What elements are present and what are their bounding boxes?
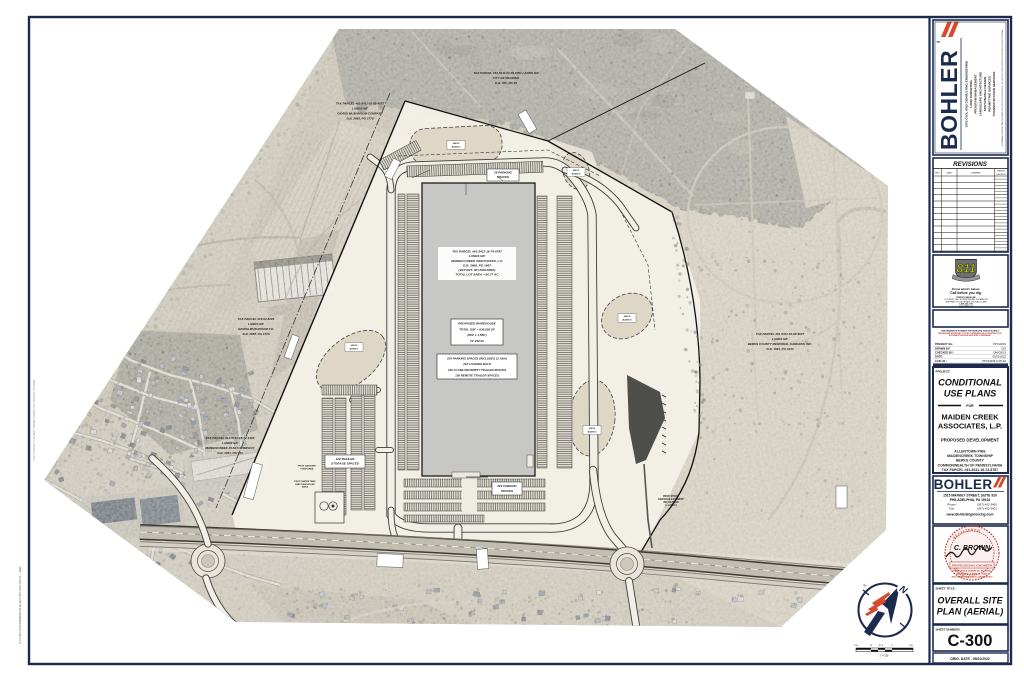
svg-text:BERKS COUNTY: BERKS COUNTY — [956, 459, 985, 463]
svg-text:COMMONWEALTH OF PENNSYLVANIA: COMMONWEALTH OF PENNSYLVANIA — [938, 463, 1003, 467]
svg-text:TOTAL GSF = 936,000 SF: TOTAL GSF = 936,000 SF — [459, 327, 495, 331]
svg-text:LANDSCAPE ARCHITECTURE: LANDSCAPE ARCHITECTURE — [978, 72, 982, 116]
svg-text:216 LOADING BAYS: 216 LOADING BAYS — [462, 362, 491, 366]
svg-text:0: 0 — [891, 645, 893, 647]
svg-text:D.B. 1691, PG 1243: D.B. 1691, PG 1243 — [766, 347, 793, 351]
svg-text:PPX13033-CUP-0A: PPX13033-CUP-0A — [982, 359, 1006, 363]
svg-text:DRAWN BY:: DRAWN BY: — [935, 346, 950, 350]
svg-text:COMMENT: COMMENT — [970, 172, 981, 174]
svg-text:Call before you dig.: Call before you dig. — [950, 291, 982, 295]
svg-text:CHECKED BY: CHECKED BY — [996, 174, 1006, 176]
svg-text:USE PLANS: USE PLANS — [944, 389, 997, 399]
svg-text:BOHLER: BOHLER — [936, 50, 962, 150]
svg-text:LANDS N/F: LANDS N/F — [352, 107, 368, 111]
svg-text:ORIG. DATE - 05/01/2022: ORIG. DATE - 05/01/2022 — [950, 657, 990, 661]
svg-text:29 PARKING: 29 PARKING — [493, 171, 512, 175]
svg-text:811: 811 — [956, 262, 975, 276]
svg-text:DOCUMENT UNLESS INDICATED OTHE: DOCUMENT UNLESS INDICATED OTHERWISE. — [949, 334, 992, 337]
svg-text:PROPOSED DEVELOPMENT: PROPOSED DEVELOPMENT — [941, 438, 1000, 443]
svg-text:534 PARKING SPACES (INCLUDES 1: 534 PARKING SPACES (INCLUDES 12 ADA) — [447, 357, 507, 361]
svg-text:MAIDENCREEK TOWNSHIP: MAIDENCREEK TOWNSHIP — [947, 454, 993, 458]
svg-text:M&VG: M&VG — [573, 170, 580, 172]
svg-text:PROP. STORM: PROP. STORM — [663, 496, 679, 498]
svg-text:DM/CB/JS: DM/CB/JS — [993, 351, 1006, 355]
svg-text:BASIN 4: BASIN 4 — [623, 318, 632, 321]
svg-text:(660' x 1,550'): (660' x 1,550') — [467, 333, 486, 337]
svg-text:FF 352.00: FF 352.00 — [470, 339, 484, 343]
svg-text:CAD I.D.:: CAD I.D.: — [935, 359, 947, 363]
svg-text:PROJECT No.:: PROJECT No.: — [935, 342, 954, 346]
svg-text:(VACANT- NO BUILDING): (VACANT- NO BUILDING) — [459, 268, 496, 272]
svg-text:GIORGI MUSHROOM COMPANY: GIORGI MUSHROOM COMPANY — [337, 112, 384, 116]
svg-text:PROJECT:: PROJECT: — [936, 370, 951, 374]
svg-text:TAX PARCEL #61-5411-02-85-4057: TAX PARCEL #61-5411-02-85-4057 — [336, 102, 385, 106]
svg-text:150: 150 — [909, 645, 913, 647]
svg-text:TM: TM — [936, 41, 939, 44]
svg-text:PROPOSED WAREHOUSE: PROPOSED WAREHOUSE — [458, 322, 497, 326]
svg-text:FIRST CHOICE LICENSE No. PE-07: FIRST CHOICE LICENSE No. PE-075559 — [953, 571, 992, 573]
svg-text:129 TRAILER: 129 TRAILER — [336, 457, 356, 461]
svg-text:www.BohlerEngineering.com: www.BohlerEngineering.com — [947, 513, 994, 517]
svg-text:1" = 150': 1" = 150' — [879, 654, 889, 657]
svg-text:M&VG: M&VG — [624, 316, 631, 318]
svg-text:TAX PARCEL #61-5411-01-89-8791: TAX PARCEL #61-5411-01-89-8791 LANDS N/F — [473, 71, 538, 75]
svg-text:LANDS N/F: LANDS N/F — [469, 254, 486, 258]
svg-text:(+1.27 AC): (+1.27 AC) — [665, 504, 676, 507]
svg-text:M&VG: M&VG — [351, 345, 358, 347]
svg-text:M&VG: M&VG — [589, 428, 596, 430]
svg-text:C-300: C-300 — [948, 632, 993, 650]
svg-text:LANDS N/F: LANDS N/F — [222, 441, 238, 445]
svg-text:D.B. 3668, PG 1667: D.B. 3668, PG 1667 — [463, 263, 491, 267]
svg-text:ALLENTOWN PIKE: ALLENTOWN PIKE — [954, 450, 986, 454]
svg-text:MAIDENCREEK PLAZA COMPANY: MAIDENCREEK PLAZA COMPANY — [205, 446, 255, 450]
svg-text:CITY OF READING: CITY OF READING — [493, 76, 520, 80]
svg-text:PROFESSIONAL ENGINEER: PROFESSIONAL ENGINEER — [952, 564, 993, 568]
svg-text:OVERALL SITE: OVERALL SITE — [937, 596, 1003, 606]
svg-text:D.B. 2665, PG 1778: D.B. 2665, PG 1778 — [346, 117, 373, 121]
svg-text:MAIDEN CREEK: MAIDEN CREEK — [941, 413, 999, 422]
svg-text:PLOT: 5/26/2022 10:42 AM BY:: PLOT: 5/26/2022 10:42 AM BY: SHAWN STRUN… — [33, 379, 36, 461]
svg-text:BASIN 2: BASIN 2 — [452, 146, 461, 148]
svg-text:TAX PARCEL #61-5415-15-73-1406: TAX PARCEL #61-5415-15-73-1406 — [206, 436, 255, 440]
svg-text:SJS: SJS — [1001, 346, 1006, 350]
svg-text:Fax:: Fax: — [949, 506, 955, 510]
svg-text:AND PUMPHOUSE: AND PUMPHOUSE — [295, 483, 315, 486]
svg-text:PLAN (AERIAL): PLAN (AERIAL) — [937, 607, 1004, 617]
svg-text:DELAWARE LICENSE No. 19040: DELAWARE LICENSE No. 19040 — [957, 573, 988, 576]
svg-text:SUSTAINABLE DESIGN: SUSTAINABLE DESIGN — [983, 76, 987, 111]
svg-text:293 PARKING: 293 PARKING — [496, 484, 517, 488]
svg-text:PHILADELPHIA, PA 19102: PHILADELPHIA, PA 19102 — [950, 498, 991, 502]
svg-text:SHEET NUMBER:: SHEET NUMBER: — [936, 628, 961, 632]
svg-text:FOR: FOR — [966, 404, 974, 408]
svg-text:RELOCATION: RELOCATION — [663, 501, 678, 504]
svg-text:45: 45 — [862, 583, 867, 588]
svg-text:STORAGE SPACES: STORAGE SPACES — [331, 462, 359, 466]
svg-text:05/01/2022: 05/01/2022 — [993, 355, 1007, 359]
svg-text:TOTAL LOT AREA = 80.77 AC: TOTAL LOT AREA = 80.77 AC — [456, 273, 500, 277]
svg-text:TRANSPORTATION SERVICES: TRANSPORTATION SERVICES — [992, 72, 996, 117]
svg-text:TAX PARCEL #61-5411-63-99-9637: TAX PARCEL #61-5411-63-99-9637 — [756, 332, 805, 336]
svg-text:D.B. 700, PG 59: D.B. 700, PG 59 — [495, 81, 517, 85]
svg-text:BERKS COUNTY MEMORIAL GARDENS,: BERKS COUNTY MEMORIAL GARDENS, INC. — [748, 342, 813, 346]
svg-text:PROP. WATER TANK: PROP. WATER TANK — [294, 480, 316, 483]
svg-text:37.5: 37.5 — [879, 645, 884, 647]
svg-text:NEW JERSEY LICENSE No. 24GE053: NEW JERSEY LICENSE No. 24GE05353500 — [952, 576, 994, 579]
svg-text:H:\\19\\PPX13033\\DRAWINGS\\PL: H:\\19\\PPX13033\\DRAWINGS\\PLAN SETS\\P… — [19, 566, 22, 643]
svg-text:CHECKED BY:: CHECKED BY: — [935, 351, 954, 355]
svg-text:D.B. 2665, PG 1778: D.B. 2665, PG 1778 — [242, 332, 269, 336]
svg-text:PERMITTING SERVICES: PERMITTING SERVICES — [988, 76, 992, 112]
svg-text:D.B. 3051, PG 904: D.B. 3051, PG 904 — [217, 451, 243, 455]
svg-text:SPACES: SPACES — [501, 489, 513, 493]
svg-text:REVISIONS: REVISIONS — [953, 161, 988, 168]
svg-text:BOHLER: BOHLER — [934, 477, 993, 492]
svg-text:SITE CIVIL AND CONSULTING ENGI: SITE CIVIL AND CONSULTING ENGINEERING — [965, 60, 969, 127]
svg-text:BASIN 3: BASIN 3 — [588, 431, 597, 433]
svg-text:AREA: AREA — [302, 486, 309, 489]
svg-text:LAND SURVEYING: LAND SURVEYING — [969, 80, 973, 108]
svg-text:CONDITIONAL: CONDITIONAL — [938, 378, 1002, 388]
svg-text:LANDS N/F: LANDS N/F — [772, 337, 788, 341]
svg-text:MAIDEN CREEK ASSOCIATES, L.P.: MAIDEN CREEK ASSOCIATES, L.P. — [451, 259, 503, 263]
svg-text:LANDS N/F: LANDS N/F — [248, 322, 264, 326]
svg-text:TAX PARCEL #15-64-8205: TAX PARCEL #15-64-8205 — [238, 317, 275, 321]
svg-text:ASSOCIATES, L.P.: ASSOCIATES, L.P. — [938, 422, 1002, 431]
svg-text:DRAINAGE EASEMENT: DRAINAGE EASEMENT — [658, 498, 684, 501]
svg-text:BASIN 1: BASIN 1 — [350, 348, 359, 350]
svg-text:75: 75 — [870, 645, 873, 647]
svg-text:TAX PARCEL #61-5411-16-74-8787: TAX PARCEL #61-5411-16-74-8787 — [452, 250, 502, 254]
svg-text:TAX PARCEL #61-5411-16-74-8787: TAX PARCEL #61-5411-16-74-8787 — [942, 468, 998, 472]
svg-text:216 CLOSE PROXIMITY TRAILER SP: 216 CLOSE PROXIMITY TRAILER SPACES — [447, 368, 506, 372]
svg-text:DATE:: DATE: — [935, 355, 943, 359]
svg-text:(267) 402-3401: (267) 402-3401 — [977, 506, 997, 510]
svg-text:PPX13033: PPX13033 — [993, 342, 1006, 346]
svg-text:REV: REV — [935, 172, 940, 174]
svg-text:138 REMOTE TRAILER SPACES: 138 REMOTE TRAILER SPACES — [455, 373, 499, 377]
svg-text:SHEET TITLE:: SHEET TITLE: — [936, 587, 956, 591]
svg-text:M&VG: M&VG — [453, 143, 460, 145]
svg-text:BASIN 5: BASIN 5 — [572, 173, 581, 175]
svg-text:PROGRAM MANAGEMENT: PROGRAM MANAGEMENT — [974, 74, 978, 114]
svg-text:PUMP AREA: PUMP AREA — [300, 467, 313, 470]
svg-text:GIORGI MUSHROOM CO.: GIORGI MUSHROOM CO. — [238, 327, 274, 331]
svg-text:DATE: DATE — [947, 171, 953, 174]
svg-text:PROP. SANITARY: PROP. SANITARY — [298, 465, 317, 468]
svg-text:www.call811.com: www.call811.com — [959, 306, 974, 308]
svg-text:SUSTAINABLE DESIGN PRACTICES A: SUSTAINABLE DESIGN PRACTICES ARE INCLUDE… — [1001, 30, 1004, 147]
svg-text:150: 150 — [854, 645, 858, 647]
